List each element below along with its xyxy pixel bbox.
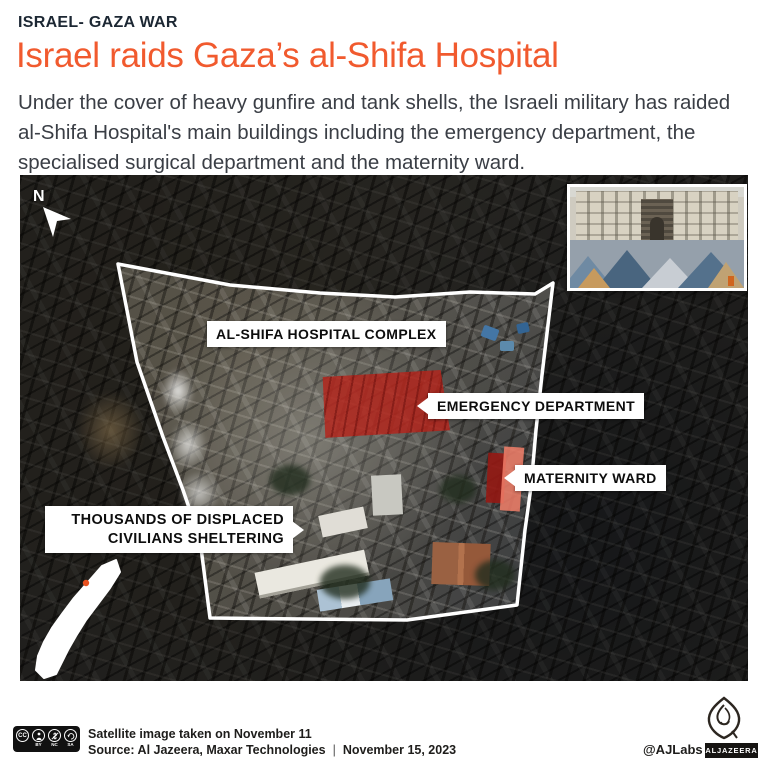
separator: | — [333, 743, 336, 757]
cc-icon: CC — [16, 729, 29, 742]
gaza-strip-locator — [30, 550, 126, 681]
satellite-map: AL-SHIFA HOSPITAL COMPLEX EMERGENCY DEPA… — [20, 175, 748, 681]
label-displaced-line2: CIVILIANS SHELTERING — [54, 530, 284, 549]
cc-by-icon — [32, 729, 45, 742]
inset-tent-camp — [570, 240, 744, 288]
north-arrow-icon — [42, 206, 72, 238]
al-shifa-locator-dot — [83, 580, 89, 586]
kicker: ISRAEL- GAZA WAR — [18, 14, 178, 32]
ajlabs-handle: @AJLabs — [643, 742, 703, 757]
description: Under the cover of heavy gunfire and tan… — [18, 88, 744, 178]
source-line: Source: Al Jazeera, Maxar Technologies|N… — [88, 743, 456, 757]
label-maternity-ward: MATERNITY WARD — [515, 465, 666, 491]
aljazeera-wordmark: ALJAZEERA — [705, 743, 758, 758]
creative-commons-badge: CC BY NC SA — [13, 726, 80, 752]
label-emergency-department: EMERGENCY DEPARTMENT — [428, 393, 644, 419]
infographic-root: ISRAEL- GAZA WAR Israel raids Gaza’s al-… — [0, 0, 770, 770]
cc-nc-icon — [48, 729, 61, 742]
label-displaced-civilians: THOUSANDS OF DISPLACED CIVILIANS SHELTER… — [45, 506, 293, 553]
source-text: Source: Al Jazeera, Maxar Technologies — [88, 743, 326, 757]
aljazeera-logo-icon — [701, 695, 747, 741]
label-hospital-complex: AL-SHIFA HOSPITAL COMPLEX — [207, 321, 446, 347]
publish-date: November 15, 2023 — [343, 743, 456, 757]
hospital-photo-inset — [567, 184, 747, 291]
label-displaced-line1: THOUSANDS OF DISPLACED — [54, 511, 284, 530]
cc-sa-icon — [64, 729, 77, 742]
compass-north-label: N — [33, 188, 45, 206]
page-title: Israel raids Gaza’s al-Shifa Hospital — [16, 36, 559, 76]
caption-satellite-date: Satellite image taken on November 11 — [88, 727, 312, 741]
